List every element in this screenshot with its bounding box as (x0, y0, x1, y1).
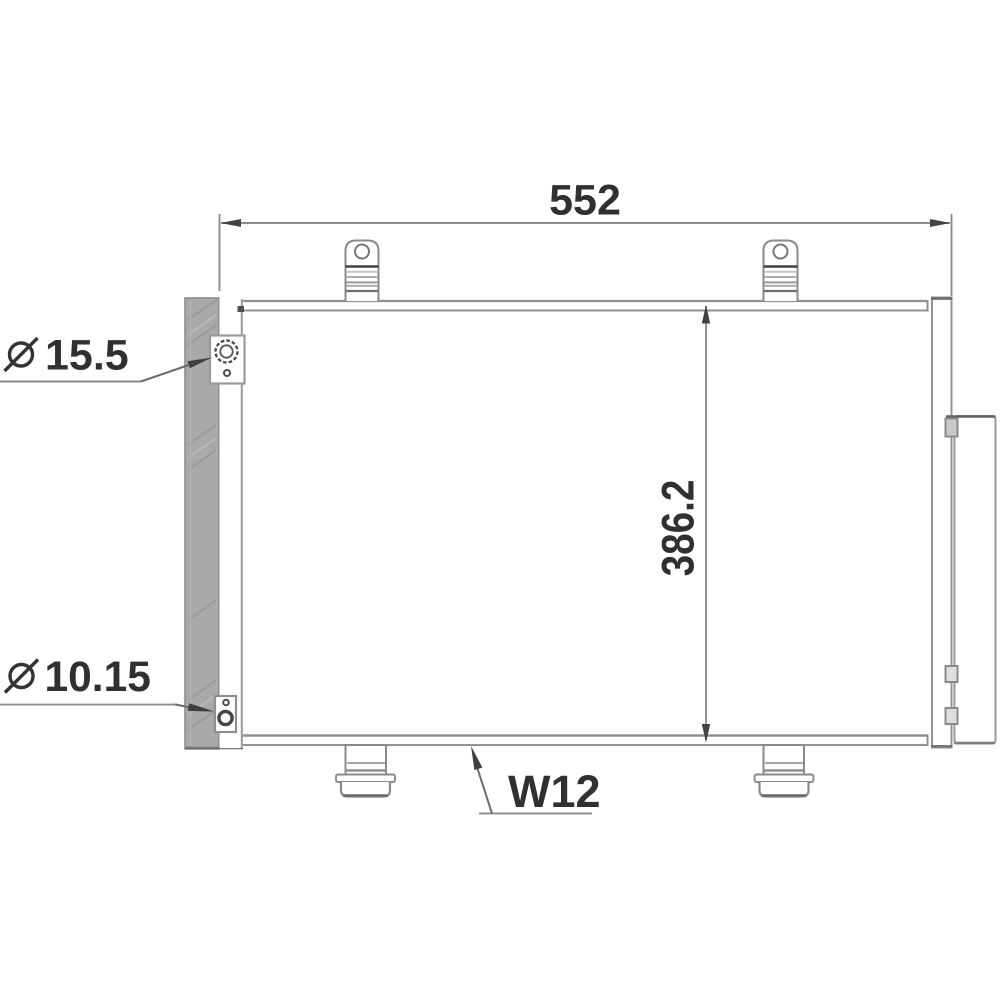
svg-text:552: 552 (549, 177, 621, 225)
svg-text:386.2: 386.2 (653, 480, 703, 577)
svg-text:15.5: 15.5 (45, 332, 129, 380)
svg-text:W12: W12 (508, 766, 601, 817)
svg-text:10.15: 10.15 (45, 654, 151, 701)
